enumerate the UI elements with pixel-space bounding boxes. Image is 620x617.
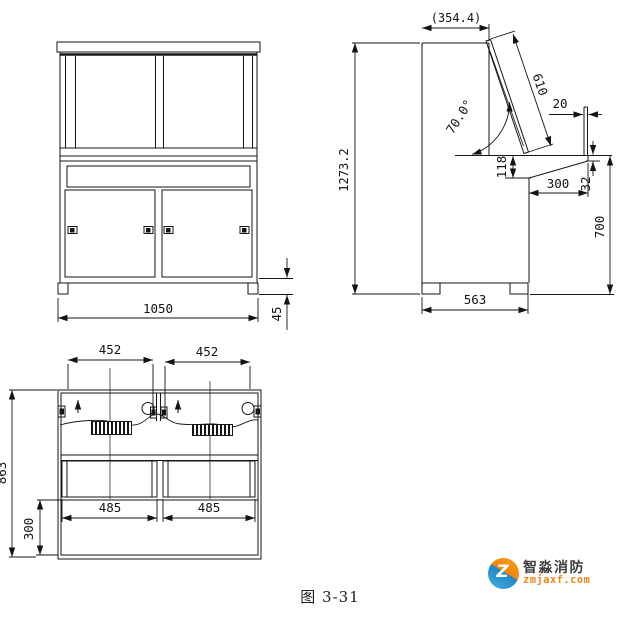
dim-desk-overhang: 300 — [547, 176, 570, 191]
left-opening — [62, 461, 157, 497]
drawer-strip — [67, 166, 250, 187]
dim-overall-depth: 863 — [0, 462, 9, 485]
dim-top-depth: (354.4) — [431, 11, 482, 25]
dim-panel-length: 610 — [529, 71, 551, 97]
dim-right-opening: 485 — [198, 500, 221, 515]
dim-front-overhang: 300 — [21, 518, 36, 541]
drawing-canvas: 1050 45 (354.4) 1273.2 — [0, 0, 620, 617]
dim-left-module: 452 — [99, 342, 122, 357]
front-view — [57, 42, 260, 294]
right-foot — [248, 283, 258, 294]
dim-edge-thickness: 32 — [578, 176, 593, 191]
cable-hole-right — [242, 403, 254, 415]
right-opening — [163, 461, 255, 497]
dim-left-opening: 485 — [99, 500, 122, 515]
side-view-dimensions: (354.4) 1273.2 610 70.0° 20 118 300 32 7… — [337, 11, 614, 314]
dim-desk-height: 700 — [592, 216, 607, 239]
vent-grille-left — [91, 421, 132, 435]
brand-company-name: 智淼消防 — [523, 561, 590, 576]
technical-drawing-page: 1050 45 (354.4) 1273.2 — [0, 0, 620, 617]
left-foot — [58, 283, 68, 294]
brand-logo-icon: Z — [488, 558, 519, 589]
plan-outline — [58, 390, 261, 559]
dim-overall-width: 1050 — [143, 301, 173, 316]
top-cap — [57, 42, 260, 52]
dim-ledge-width: 20 — [552, 96, 567, 111]
dim-overall-height: 1273.2 — [337, 148, 351, 191]
dim-apron-height: 118 — [494, 156, 509, 179]
dim-foot-height: 45 — [269, 306, 284, 321]
brand-website: zmjaxf.com — [523, 575, 590, 586]
brand-logo: Z 智淼消防 zmjaxf.com — [488, 558, 590, 589]
brand-logo-text: 智淼消防 zmjaxf.com — [523, 561, 590, 587]
figure-caption: 图 3-31 — [250, 586, 410, 607]
dim-panel-angle: 70.0° — [443, 97, 476, 137]
side-right-foot — [510, 283, 528, 294]
side-left-foot — [422, 283, 440, 294]
door-handles — [68, 227, 249, 234]
plan-view — [58, 368, 261, 559]
dim-right-module: 452 — [196, 344, 219, 359]
dim-base-depth: 563 — [464, 292, 487, 307]
left-door — [65, 190, 155, 277]
vent-grille-right — [192, 424, 233, 436]
side-view — [422, 40, 612, 295]
angle-arc — [472, 102, 510, 155]
plan-view-dimensions: 452 452 485 485 300 863 — [0, 342, 255, 557]
logo-monogram: Z — [496, 564, 508, 581]
right-door — [162, 190, 252, 277]
inclined-panel — [486, 40, 529, 154]
latch-blocks — [58, 406, 261, 418]
